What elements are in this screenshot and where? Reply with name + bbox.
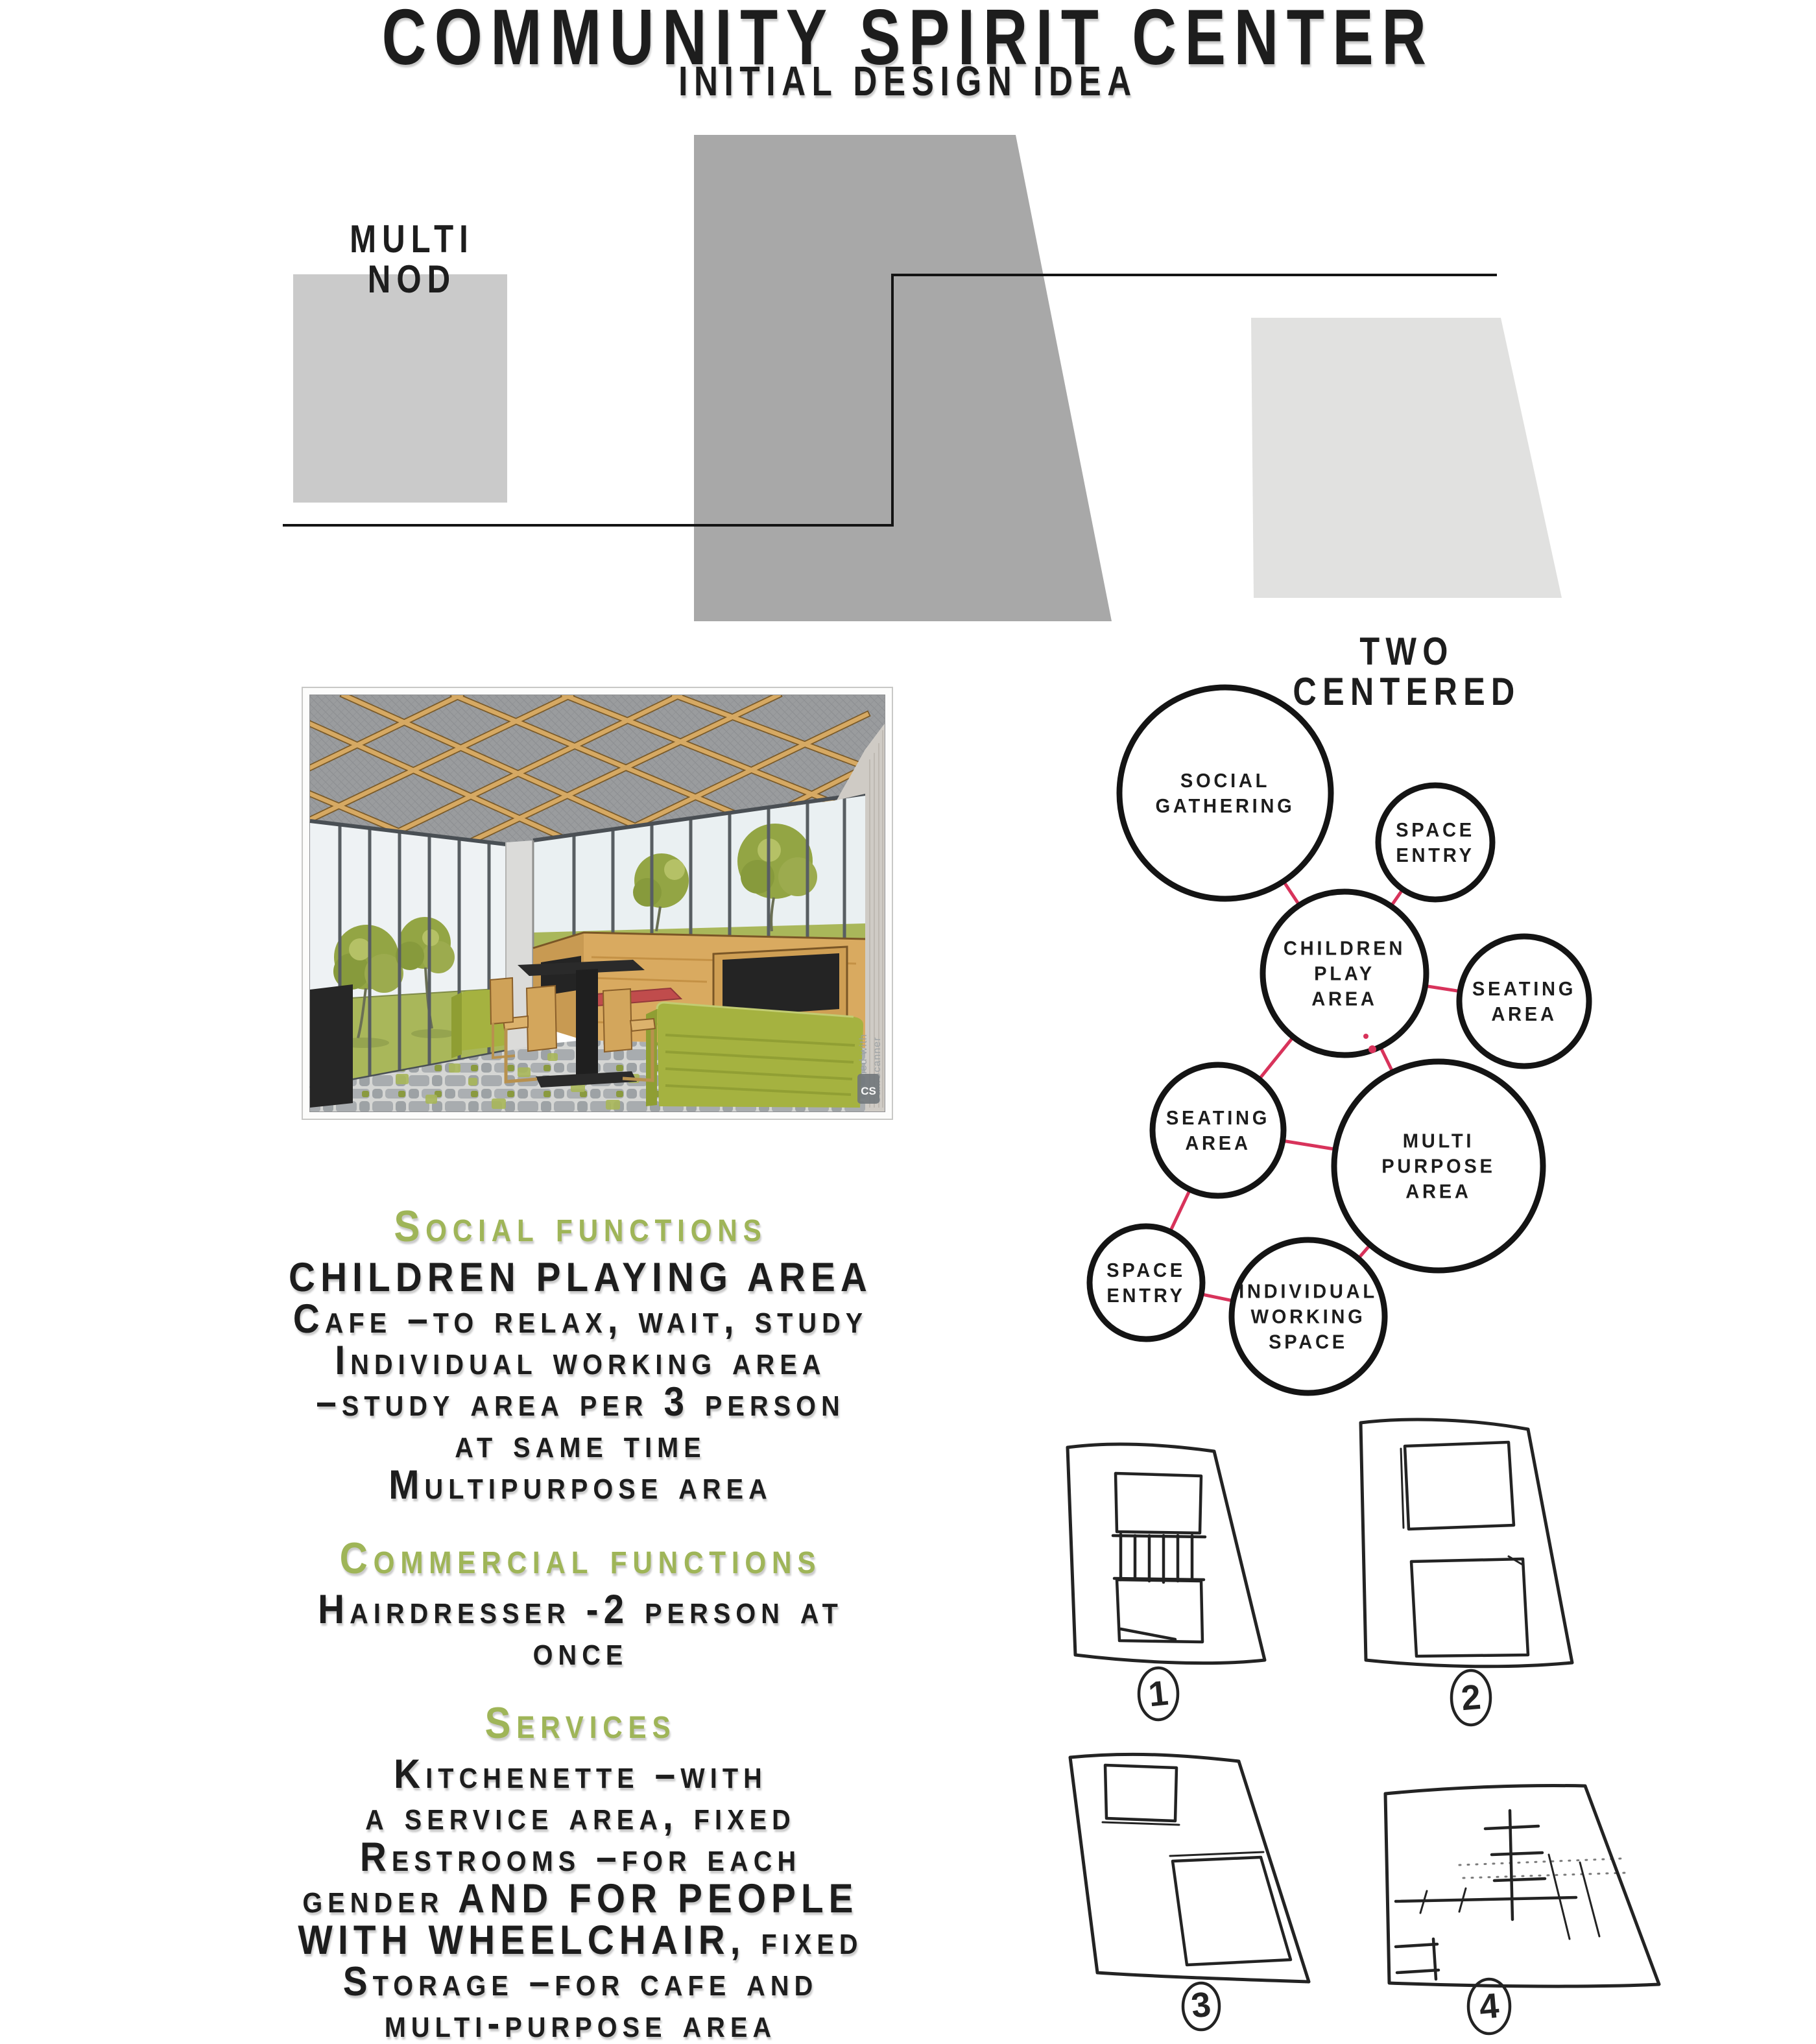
- design-board: COMMUNITY SPIRIT CENTER INITIAL DESIGN I…: [0, 0, 1816, 2044]
- bubble-label-seating-right: SEATING AREA: [1472, 976, 1576, 1027]
- bubble-label-multi-purpose: MULTI PURPOSE AREA: [1381, 1128, 1495, 1204]
- bubble-label-line: ENTRY: [1396, 842, 1475, 868]
- section-line: Storage –for cafe and: [198, 1961, 963, 2002]
- massing-diagram: [0, 0, 1816, 687]
- green-sofa-large: [646, 1003, 863, 1108]
- section-line: Individual working area: [198, 1340, 963, 1381]
- bubble-label-line: AREA: [1166, 1130, 1270, 1156]
- massing-label-multi-nod: MULTI NOD: [305, 219, 518, 300]
- bubble-label-line: AREA: [1381, 1179, 1495, 1204]
- section-line: WITH WHEELCHAIR, fixed: [198, 1919, 963, 1961]
- bubble-label-line: SEATING: [1472, 976, 1576, 1001]
- bubble-label-line: INDIVIDUAL: [1239, 1279, 1378, 1304]
- section-line: Cafe –to relax, wait, study: [198, 1298, 963, 1340]
- sketch-number-4: 4: [1477, 1986, 1500, 2026]
- bubble-label-line: MULTI: [1381, 1128, 1495, 1154]
- section-line: –study area per 3 person: [198, 1381, 963, 1423]
- plan-sketches: 1 2 3 4: [1038, 1401, 1725, 2044]
- bubble-label-line: GATHERING: [1156, 793, 1295, 818]
- bubble-label-social: SOCIAL GATHERING: [1156, 768, 1295, 818]
- section-line: gender AND FOR PEOPLE: [198, 1878, 963, 1919]
- section-line: CHILDREN PLAYING AREA: [198, 1257, 963, 1298]
- sketch-1: [1068, 1444, 1265, 1663]
- bubble-label-line: CHILDREN: [1284, 936, 1405, 961]
- bubble-label-line: SPACE: [1396, 817, 1475, 842]
- section-heading: Social functions: [207, 1201, 955, 1252]
- section-social-functions: Social functions CHILDREN PLAYING AREA C…: [156, 1201, 1005, 1506]
- section-line: Multipurpose area: [198, 1464, 963, 1506]
- bubble-label-space-entry-bottom: SPACE ENTRY: [1106, 1257, 1186, 1308]
- sketch-number-2: 2: [1459, 1678, 1482, 1718]
- bubble-label-space-entry-top: SPACE ENTRY: [1396, 817, 1475, 868]
- bubble-label-line: SEATING: [1166, 1105, 1270, 1130]
- sketch-2: [1361, 1420, 1572, 1667]
- massing-shape-left: [293, 274, 507, 503]
- section-line: once: [198, 1630, 963, 1672]
- sketch-4: [1385, 1786, 1659, 1987]
- black-side-table: [310, 984, 353, 1108]
- section-line: Kitchenette –with: [198, 1753, 963, 1795]
- sketch-number-1: 1: [1147, 1674, 1170, 1715]
- section-heading: Commercial functions: [207, 1533, 955, 1584]
- section-line: Hairdresser -2 person at: [198, 1589, 963, 1630]
- bubble-label-children: CHILDREN PLAY AREA: [1284, 936, 1405, 1012]
- section-services: Services Kitchenette –with a service are…: [156, 1698, 1005, 2044]
- bubble-label-line: ENTRY: [1106, 1283, 1186, 1308]
- bubble-label-line: SPACE: [1106, 1257, 1186, 1283]
- sketch-3: [1070, 1754, 1309, 1982]
- bubble-label-line: PLAY: [1284, 961, 1405, 986]
- section-commercial-functions: Commercial functions Hairdresser -2 pers…: [156, 1533, 1005, 1672]
- section-line: multi-purpose area: [198, 2002, 963, 2044]
- section-line: Restrooms –for each: [198, 1836, 963, 1878]
- bubble-label-line: WORKING: [1239, 1304, 1378, 1329]
- massing-shape-right: [1251, 318, 1562, 598]
- section-line: at same time: [198, 1423, 963, 1464]
- bubble-label-line: PURPOSE: [1381, 1154, 1495, 1179]
- bubble-label-individual: INDIVIDUAL WORKING SPACE: [1239, 1279, 1378, 1355]
- bubble-label-line: AREA: [1472, 1001, 1576, 1027]
- booth-screen-large: [723, 953, 839, 1017]
- massing-shape-center: [694, 135, 1112, 621]
- section-line: a service area, fixed: [198, 1795, 963, 1836]
- interior-rendering: Scanned with CamScanner CS: [298, 685, 896, 1123]
- bubble-label-line: AREA: [1284, 986, 1405, 1012]
- camscanner-badge-text: CS: [861, 1085, 876, 1097]
- bubble-label-line: SPACE: [1239, 1329, 1378, 1355]
- section-heading: Services: [207, 1698, 955, 1748]
- bubble-label-line: SOCIAL: [1156, 768, 1295, 793]
- sketch-number-3: 3: [1189, 1985, 1213, 2026]
- bubble-label-seating-left: SEATING AREA: [1166, 1105, 1270, 1156]
